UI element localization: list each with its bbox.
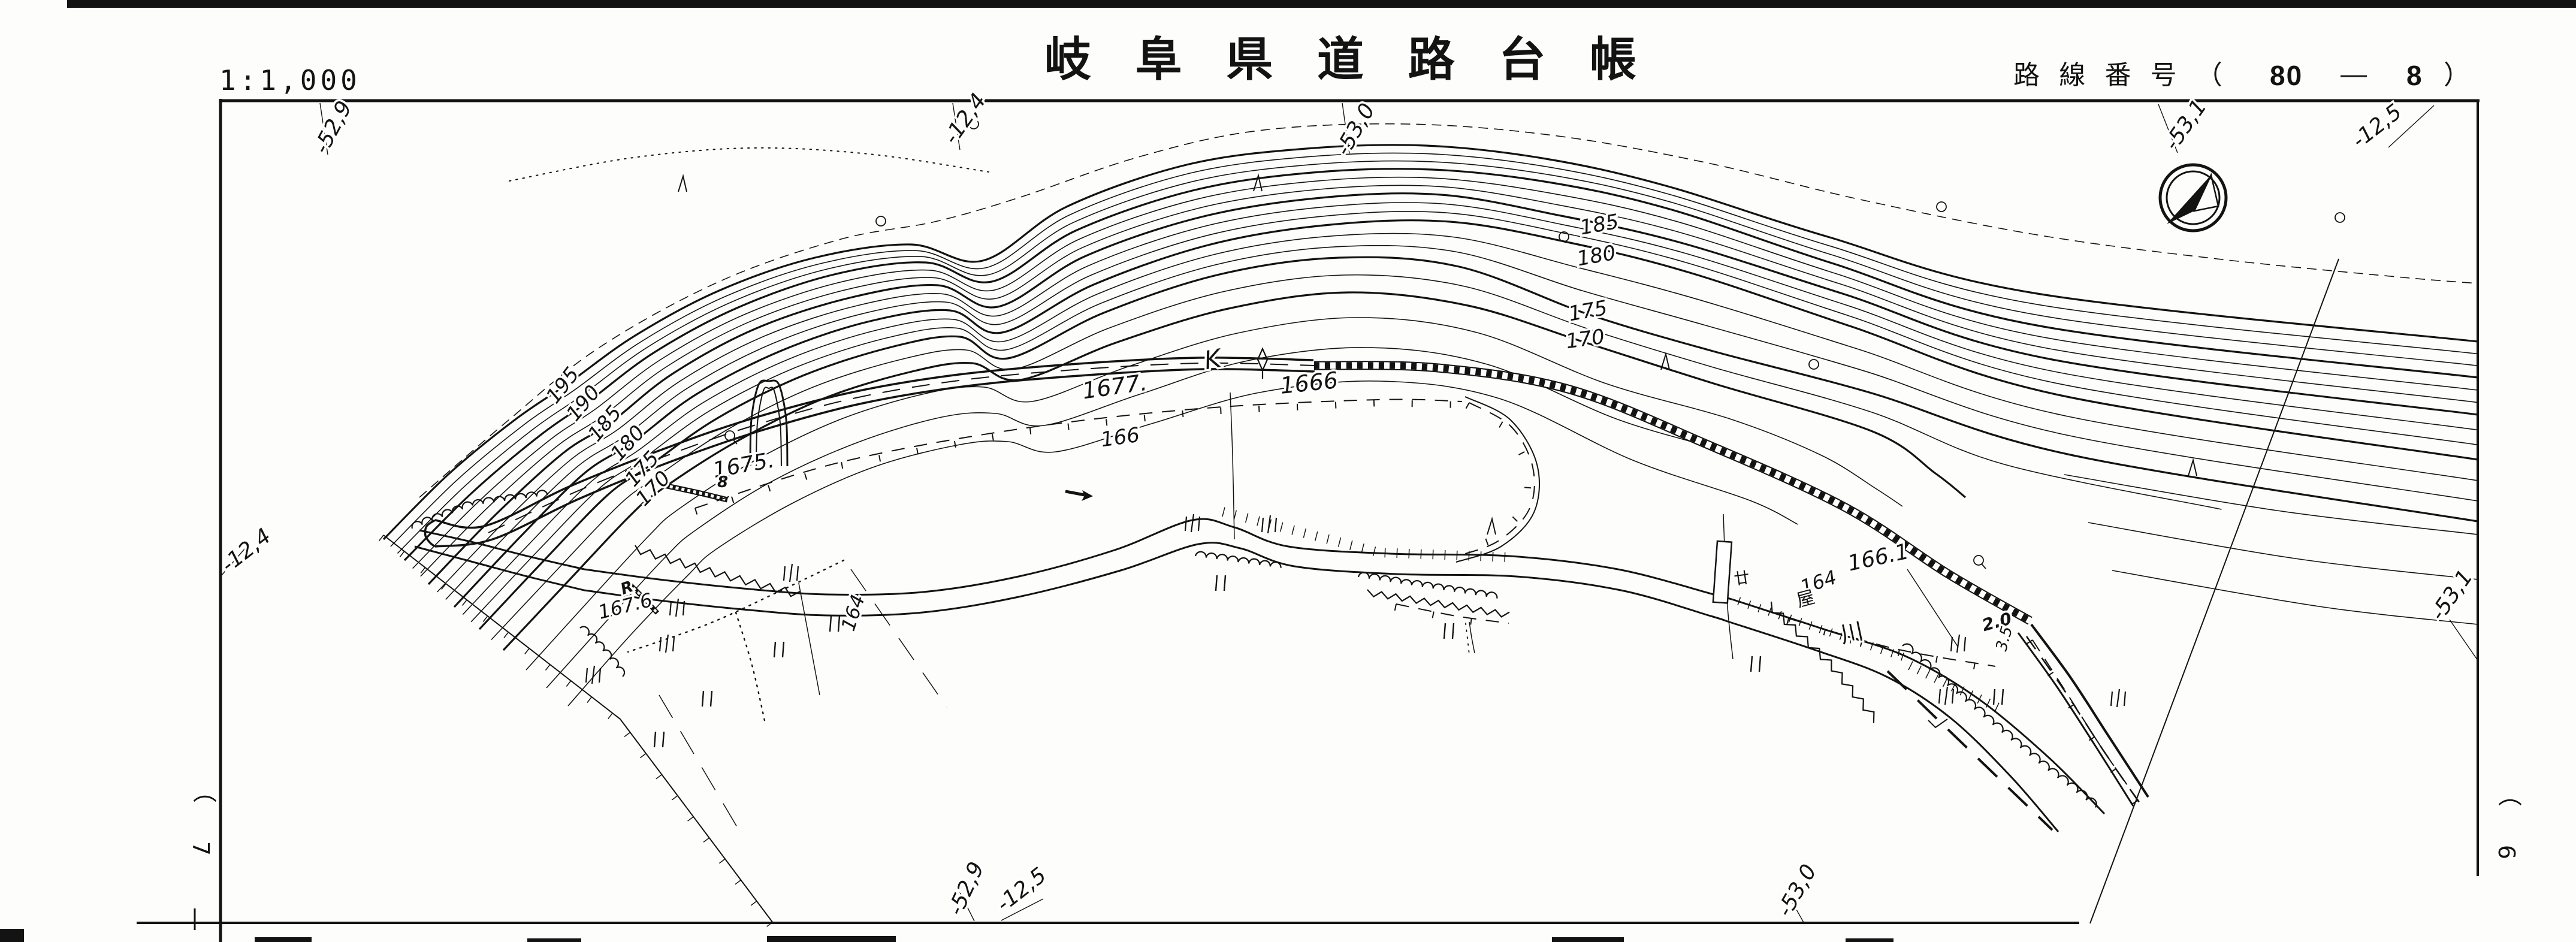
vegetation-mark-3 [1185, 514, 1200, 532]
scan-mark [255, 937, 312, 942]
contour-thin [463, 233, 2478, 614]
sheet-number-right: 6 [2493, 845, 2520, 859]
exit-road-west-edge [2018, 633, 2133, 806]
bold-dash-southeast [1888, 671, 2052, 830]
lot-line-4 [1907, 569, 1958, 647]
contour-east-3 [2112, 570, 2478, 624]
contour-index-180 [454, 221, 2478, 607]
contour-index-195 [383, 145, 2478, 539]
spot-elevation: 166.1 [1846, 539, 1911, 576]
grid-coord: -12,4 [939, 89, 991, 149]
scan-mark [527, 938, 581, 942]
tree-circle-symbol [1937, 202, 1946, 212]
grid-coord: -53,0 [1331, 99, 1380, 160]
lane-dotted [1466, 623, 1469, 654]
contour-thin [471, 246, 2478, 622]
lower-road-north-edge [584, 519, 1732, 599]
vegetation-mark [654, 732, 664, 747]
route-number-dash: — [2341, 59, 2373, 89]
contour-thin [446, 212, 2478, 600]
lot-line-1 [659, 695, 737, 827]
route-number-suffix: ） [2444, 61, 2476, 90]
spot-elevation: 166 [1100, 423, 1141, 452]
fence-exit-road [2033, 640, 2139, 802]
grid-coord: -52,9 [309, 97, 357, 158]
map-linework [221, 103, 2478, 926]
cut-slope-zigzag-1 [635, 545, 800, 596]
vegetation-mark-3 [784, 564, 798, 582]
road-ledger-sheet: -52,9-12,4-53,0-53,1-12,5-12,4-53,1-52,9… [0, 0, 2576, 942]
vegetation-mark [1444, 623, 1454, 639]
boundary-ticks [379, 535, 773, 926]
vegetation-kanji: 廿 [1733, 569, 1751, 588]
embankment-scallop-3 [1358, 572, 1497, 598]
contour-thin [437, 203, 2478, 592]
grid-coord: -52,9 [943, 858, 989, 919]
scan-mark [67, 0, 2576, 8]
scale-label: 1:1,000 [219, 64, 361, 96]
grid-coord: -53,1 [2160, 95, 2212, 155]
station-label: 1666 [1279, 367, 1339, 399]
leader-line [2450, 620, 2478, 660]
compass-needle-solid [2167, 175, 2211, 224]
kilopost-diamond [1258, 349, 1267, 379]
dotted-boundary-2 [736, 612, 765, 723]
conifer-symbol [2188, 460, 2197, 476]
scan-mark [1846, 938, 1894, 942]
slope-hatch-1 [1222, 508, 1505, 562]
fence-lower [1396, 604, 1509, 623]
route-branch-value: 8 [2406, 60, 2423, 91]
exit-road-east-edge [2031, 624, 2148, 797]
contour-sub-3 [568, 381, 1798, 706]
vegetation-mark-3 [660, 635, 674, 653]
sheet-number-left: 7 [188, 841, 214, 856]
road-point-letter: K [1202, 343, 1225, 376]
vegetation-mark-3 [586, 666, 600, 684]
fence-loop-posts [1466, 403, 1532, 545]
point-mark: 8 [717, 473, 728, 491]
sheet-number-left: （ [190, 779, 218, 803]
stream-upper [1230, 393, 1234, 539]
vegetation-mark-3 [1262, 515, 1276, 533]
vegetation-mark-3 [2111, 689, 2125, 707]
route-number-prefix: 路 線 番 号 （ [2013, 61, 2228, 90]
grid-coord: -12,4 [217, 524, 276, 578]
contour-thin [421, 185, 2478, 576]
grid-coord: -12,5 [992, 863, 1052, 917]
contour-label: 175 [1567, 296, 1609, 327]
grid-coord: -12,5 [2348, 99, 2407, 153]
scan-mark [0, 929, 24, 942]
neatline-left-diagonal [383, 535, 773, 923]
contour-index-175 [479, 257, 2478, 629]
lane-double-line [1469, 622, 1475, 653]
scan-mark [1552, 937, 1624, 942]
contour-dotted-top [509, 148, 989, 181]
fence-exit-road-posts [2027, 640, 2138, 804]
conifer-symbol [678, 176, 687, 192]
contour-east-2 [2088, 523, 2478, 579]
vegetation-mark-3 [1939, 687, 1953, 705]
sheet-number-right: （ [2495, 783, 2523, 807]
map-symbols [586, 119, 2345, 747]
kanji-river: 川 [1838, 618, 1865, 648]
vegetation-mark [1994, 689, 2003, 705]
vegetation-mark [702, 691, 712, 707]
contour-east-1 [2064, 475, 2478, 535]
fence-lower-posts [1395, 604, 1472, 624]
loop-connector [1456, 397, 1539, 562]
route-number-value: 80 [2270, 60, 2303, 91]
direction-arrow-shaft [1065, 491, 1085, 495]
map-canvas: -52,9-12,4-53,0-53,1-12,5-12,4-53,1-52,9… [0, 0, 2576, 942]
lot-line-3 [799, 583, 820, 695]
southeast-road-north-edge [1732, 599, 2104, 814]
vegetation-mark-3 [1951, 635, 1965, 653]
sheet-frame [137, 99, 2480, 942]
vegetation-mark [1751, 656, 1760, 672]
embankment-scallop-5 [1902, 644, 2097, 808]
page-title: 岐 阜 県 道 路 台 帳 [1044, 33, 1652, 86]
neatline-right-diagonal [2090, 259, 2339, 923]
tree-circle-symbol [1809, 360, 1819, 369]
check-mark [1928, 719, 1947, 727]
contour-index-185 [428, 194, 2478, 584]
tree-circle-symbol [2335, 213, 2345, 222]
tree-circle-symbol [876, 216, 886, 226]
vegetation-mark [1216, 575, 1225, 591]
conifer-symbol [1487, 519, 1496, 535]
lower-road-south-edge [584, 543, 1726, 621]
grid-coord: -53,0 [1772, 861, 1822, 921]
spot-elevation: 164 [836, 592, 869, 634]
north-arrow-icon [2160, 165, 2226, 231]
spring-symbol-tail [1982, 564, 1986, 569]
culvert-bridge-symbol [1713, 541, 1732, 603]
lot-line-2 [851, 569, 947, 707]
vegetation-mark [774, 642, 784, 657]
contour-label: 170 [1565, 325, 1606, 354]
scan-mark [767, 936, 896, 942]
